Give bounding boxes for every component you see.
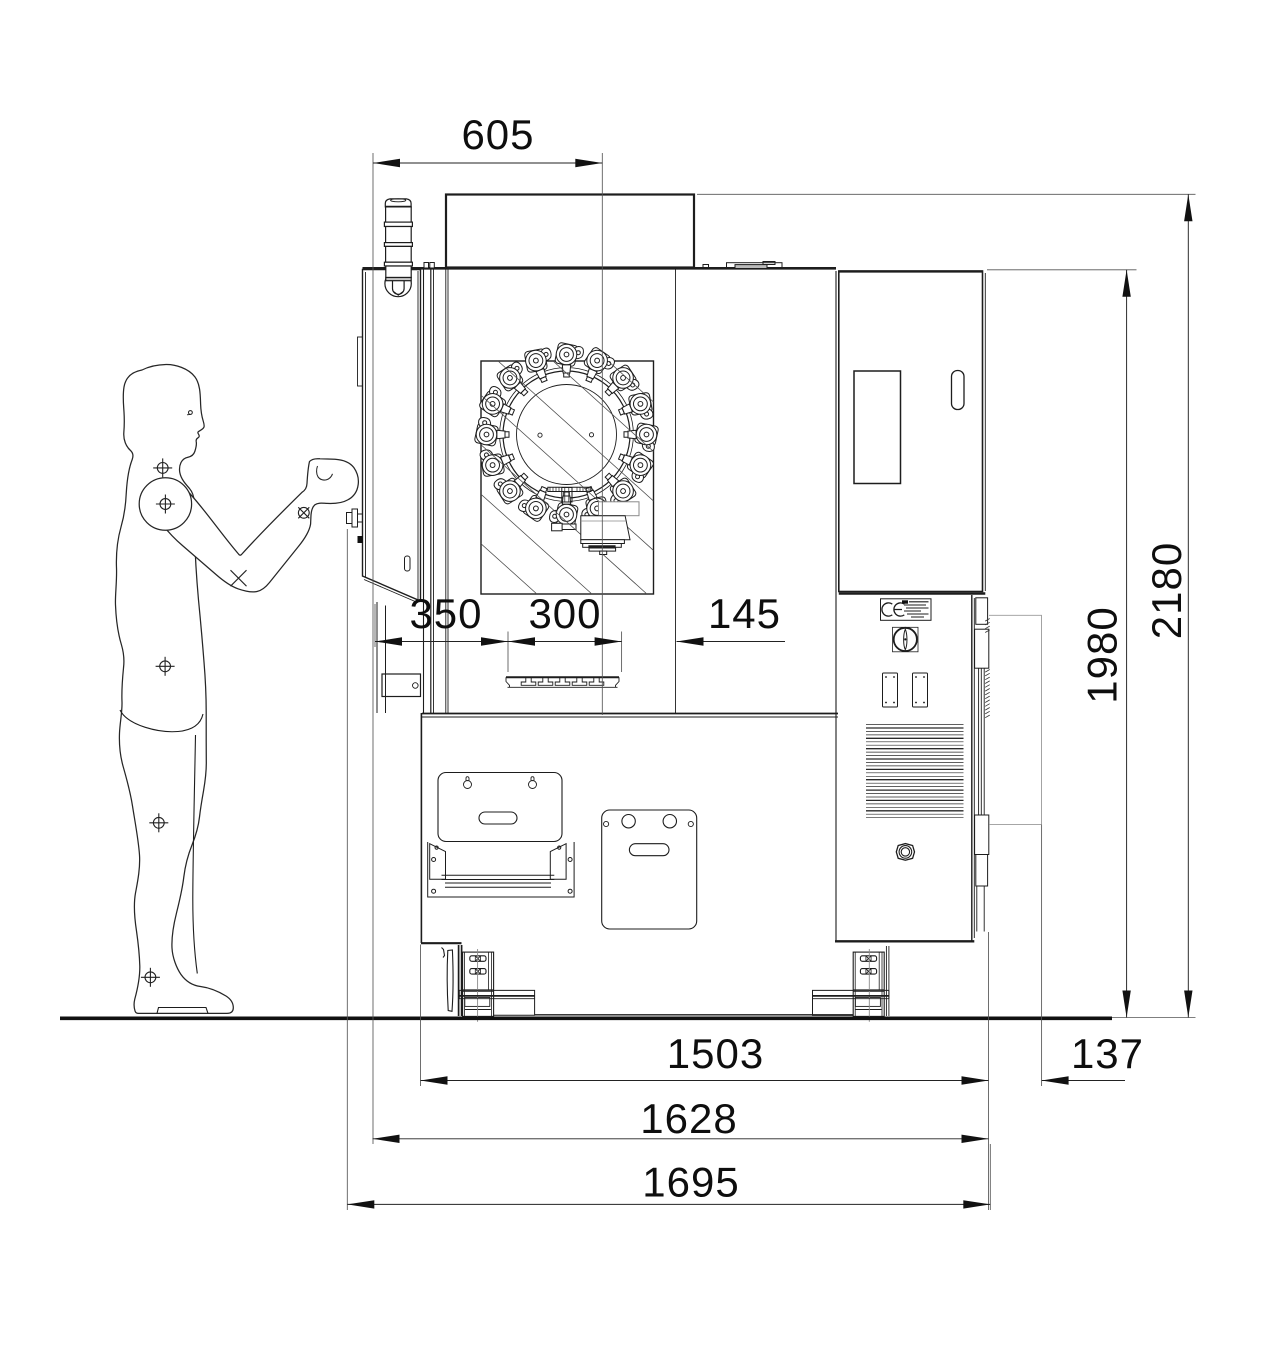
svg-text:1628: 1628 <box>640 1095 737 1142</box>
svg-text:2180: 2180 <box>1143 542 1190 639</box>
svg-text:145: 145 <box>708 590 781 637</box>
svg-text:137: 137 <box>1071 1030 1144 1077</box>
svg-text:350: 350 <box>409 590 482 637</box>
svg-text:1503: 1503 <box>667 1030 764 1077</box>
svg-text:300: 300 <box>528 590 601 637</box>
svg-text:1980: 1980 <box>1078 606 1125 703</box>
svg-text:605: 605 <box>461 111 534 158</box>
svg-text:1695: 1695 <box>642 1159 739 1206</box>
